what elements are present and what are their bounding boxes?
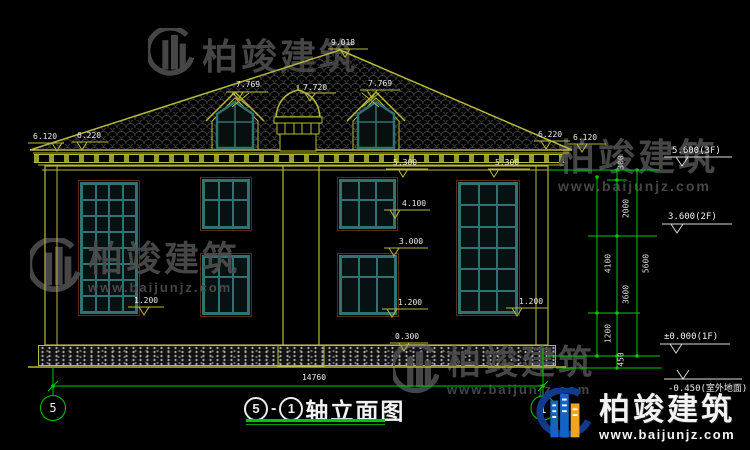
title-underline-thick bbox=[246, 419, 385, 422]
window-pane bbox=[97, 217, 109, 231]
dormer-left bbox=[206, 92, 264, 150]
window-pane bbox=[97, 201, 109, 215]
window-pane bbox=[480, 185, 497, 204]
dim-sill-1f-left: 1.200 bbox=[134, 296, 158, 305]
window-pane bbox=[360, 278, 376, 312]
elevation-drawing-canvas: 9.018 7.769 7.720 7.769 6.120 6.220 6.22… bbox=[0, 0, 750, 450]
window-pane bbox=[498, 270, 515, 289]
dim-win-top-right: 5.300 bbox=[495, 158, 519, 167]
window-pane bbox=[377, 201, 393, 226]
window-pane bbox=[124, 217, 136, 231]
watermark-logo-icon bbox=[148, 28, 194, 80]
window-pane bbox=[83, 217, 95, 231]
window-pane bbox=[342, 201, 358, 226]
dim-dormer-left: 7.769 bbox=[236, 80, 260, 89]
window-pane bbox=[342, 258, 358, 276]
watermark-logo-icon bbox=[30, 238, 80, 298]
window-pane bbox=[461, 270, 478, 289]
window-pane bbox=[498, 185, 515, 204]
cupola bbox=[274, 85, 322, 151]
window-pane bbox=[480, 228, 497, 247]
level-2f: 3.600(2F) bbox=[668, 212, 717, 222]
brand-logo-icon bbox=[531, 388, 593, 446]
dim-total-width: 14760 bbox=[284, 373, 344, 382]
vdim-450: 450 bbox=[617, 338, 626, 382]
window-1f-right bbox=[337, 253, 399, 317]
level-3f: 5.600(3F) bbox=[672, 146, 721, 156]
watermark-site: www.baijunjz.com bbox=[558, 179, 718, 194]
window-pane bbox=[110, 185, 122, 199]
dim-plinth: 0.300 bbox=[395, 332, 419, 341]
level-1f: ±0.000(1F) bbox=[664, 332, 718, 342]
window-pane bbox=[83, 297, 95, 311]
dim-sill-1f-right: 1.200 bbox=[519, 297, 543, 306]
window-pane bbox=[461, 228, 478, 247]
window-pane bbox=[234, 201, 247, 226]
window-grid bbox=[339, 179, 396, 229]
tall-window-right bbox=[456, 180, 520, 316]
brand-logo-name: 柏竣建筑 bbox=[599, 394, 735, 425]
watermark-brand: 柏竣建筑 bbox=[558, 138, 718, 179]
window-2f-left bbox=[200, 177, 252, 231]
window-2f-right bbox=[337, 177, 398, 231]
dim-eave-left-inner: 6.220 bbox=[77, 131, 101, 140]
window-pane bbox=[360, 201, 376, 226]
window-pane bbox=[110, 217, 122, 231]
window-pane bbox=[342, 278, 358, 312]
window-pane bbox=[97, 297, 109, 311]
vdim-300: 300 bbox=[617, 141, 626, 185]
window-pane bbox=[498, 206, 515, 225]
dim-cupola: 7.720 bbox=[303, 83, 327, 92]
window-pane bbox=[342, 182, 358, 199]
dim-win-top-left: 5.300 bbox=[393, 158, 417, 167]
brand-logo-site: www.baijunjz.com bbox=[599, 428, 735, 441]
watermark-logo-icon bbox=[393, 344, 439, 398]
window-pane bbox=[378, 258, 394, 276]
dim-sill-2f: 4.100 bbox=[402, 199, 426, 208]
window-pane bbox=[378, 278, 394, 312]
title-axis-left-bubble: 5 bbox=[244, 397, 268, 421]
window-pane bbox=[480, 249, 497, 268]
vdim-3600: 3600 bbox=[622, 273, 631, 317]
window-pane bbox=[360, 182, 376, 199]
window-pane bbox=[110, 201, 122, 215]
window-pane bbox=[205, 201, 218, 226]
dim-roof-peak: 9.018 bbox=[331, 38, 355, 47]
window-pane bbox=[498, 228, 515, 247]
dim-top-1f: 3.000 bbox=[399, 237, 423, 246]
vdim-4100: 4100 bbox=[604, 242, 613, 286]
axis-bubble-left: 5 bbox=[43, 401, 63, 415]
dim-dormer-right: 7.769 bbox=[368, 79, 392, 88]
window-grid bbox=[339, 255, 397, 315]
vdim-total: 5600 bbox=[642, 242, 651, 286]
dormer-right bbox=[347, 92, 405, 150]
watermark-brand: 柏竣建筑 bbox=[88, 240, 240, 280]
window-pane bbox=[480, 206, 497, 225]
watermark-top: 柏竣建筑 bbox=[148, 28, 358, 80]
window-pane bbox=[220, 182, 233, 199]
window-pane bbox=[360, 258, 376, 276]
brand-logo: 柏竣建筑 www.baijunjz.com bbox=[531, 388, 735, 446]
cornice-dentil-band bbox=[34, 154, 568, 163]
watermark-left: 柏竣建筑 www.baijunjz.com bbox=[30, 238, 240, 298]
vdim-1200: 1200 bbox=[604, 312, 613, 356]
window-pane bbox=[498, 292, 515, 311]
dim-sill-1f-center: 1.200 bbox=[398, 298, 422, 307]
dim-eave-right-outer: 6.120 bbox=[573, 133, 597, 142]
window-pane bbox=[461, 292, 478, 311]
window-pane bbox=[498, 249, 515, 268]
dim-eave-left-outer: 6.120 bbox=[33, 132, 57, 141]
window-pane bbox=[124, 185, 136, 199]
watermark-brand: 柏竣建筑 bbox=[447, 345, 595, 382]
window-pane bbox=[480, 292, 497, 311]
window-pane bbox=[220, 201, 233, 226]
window-pane bbox=[234, 182, 247, 199]
window-pane bbox=[83, 185, 95, 199]
watermark-brand: 柏竣建筑 bbox=[202, 28, 358, 80]
window-pane bbox=[461, 206, 478, 225]
window-pane bbox=[97, 185, 109, 199]
window-pane bbox=[480, 270, 497, 289]
title-axis-separator: - bbox=[271, 400, 276, 418]
window-pane bbox=[205, 182, 218, 199]
title-axis-right-bubble: 1 bbox=[279, 397, 303, 421]
window-grid bbox=[202, 179, 250, 229]
window-pane bbox=[461, 249, 478, 268]
window-pane bbox=[124, 201, 136, 215]
title-underline-thin bbox=[246, 424, 385, 425]
window-pane bbox=[83, 201, 95, 215]
watermark-site: www.baijunjz.com bbox=[88, 281, 240, 296]
window-grid bbox=[458, 182, 518, 314]
window-pane bbox=[461, 185, 478, 204]
vdim-2000: 2000 bbox=[622, 187, 631, 231]
dim-eave-right-inner: 6.220 bbox=[538, 130, 562, 139]
window-pane bbox=[110, 297, 122, 311]
window-pane bbox=[377, 182, 393, 199]
